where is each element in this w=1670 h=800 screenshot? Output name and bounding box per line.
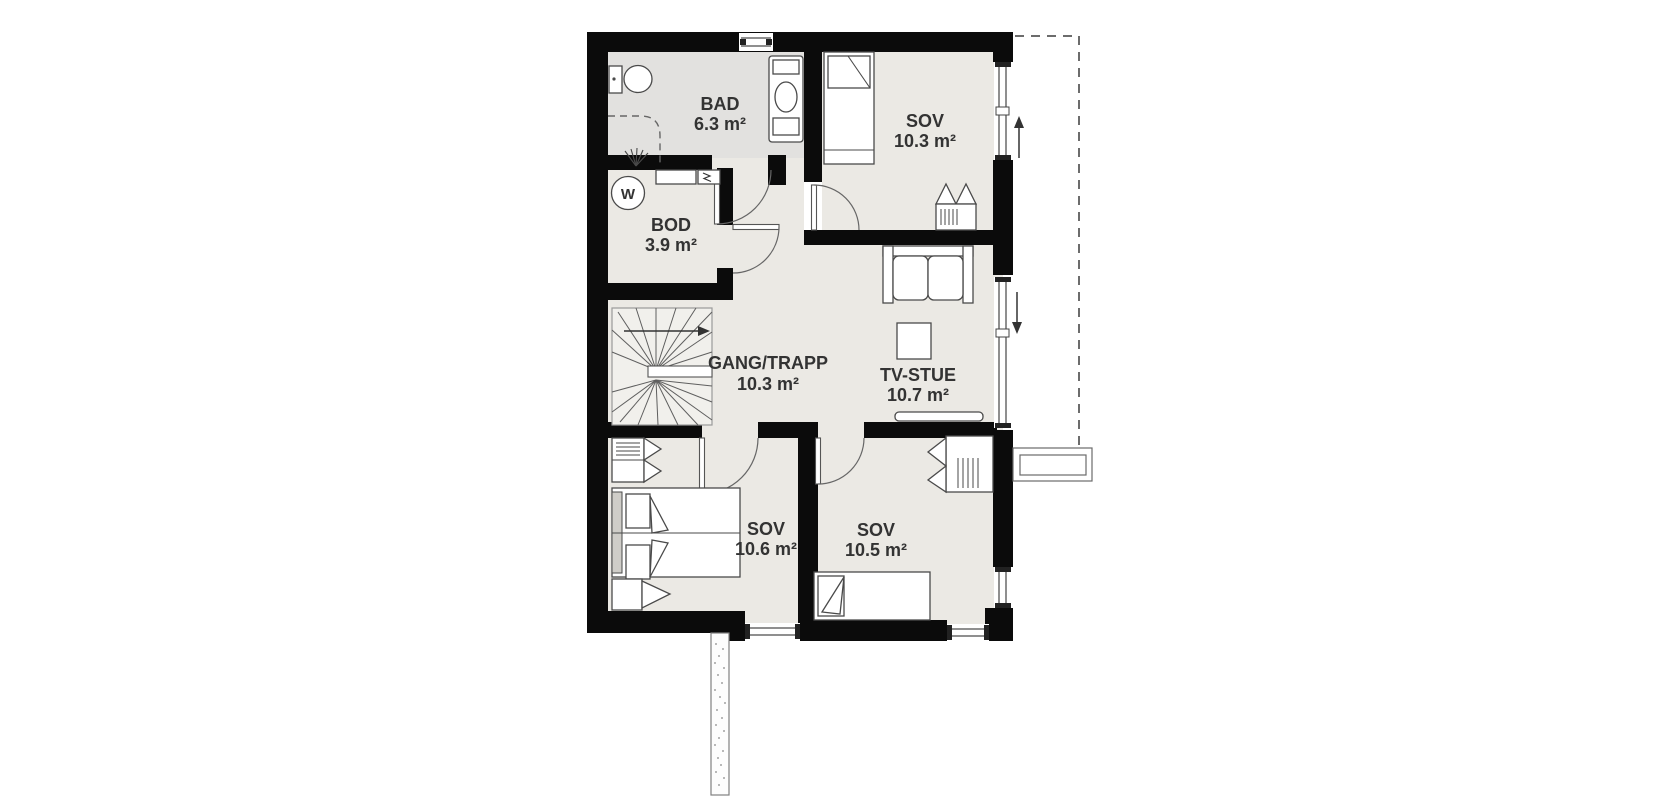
room-label-sov-top: SOV xyxy=(906,111,944,131)
room-label-sov-left: SOV xyxy=(747,519,785,539)
window-right-sov xyxy=(994,62,1012,160)
toilet xyxy=(609,66,652,94)
room-label-tvstue: TV-STUE xyxy=(880,365,956,385)
window-right-lower xyxy=(994,567,1012,608)
room-area-sov-right: 10.5 m² xyxy=(845,540,907,560)
exterior-wall-right-mid xyxy=(993,160,1013,275)
water-heater-label: W xyxy=(621,186,636,203)
room-area-gang: 10.3 m² xyxy=(737,374,799,394)
exterior-wall-left xyxy=(587,32,608,633)
floorplan-drawing: BAD 6.3 m² SOV 10.3 m² BOD 3.9 m² GANG/T… xyxy=(0,0,1670,800)
window-arrow-up xyxy=(1014,116,1024,158)
exterior-wall-top xyxy=(587,32,1013,52)
floorplan-canvas: BAD 6.3 m² SOV 10.3 m² BOD 3.9 m² GANG/T… xyxy=(0,0,1670,800)
wall-bod-right-stub xyxy=(717,268,733,283)
wall-bad-sov-divider xyxy=(804,32,822,182)
wall-sov106-top-right xyxy=(758,422,818,438)
window-top-vent xyxy=(739,33,773,51)
room-label-bad: BAD xyxy=(701,94,740,114)
bathtub xyxy=(769,56,803,142)
coffee-table xyxy=(897,323,931,359)
room-area-bod: 3.9 m² xyxy=(645,235,697,255)
tv-bench xyxy=(895,412,983,421)
sofa xyxy=(883,246,973,303)
wall-sov-tvstue-divider xyxy=(804,230,997,245)
support-post xyxy=(711,633,729,795)
exterior-wall-right-lower xyxy=(993,430,1013,567)
exterior-wall-bottom-left xyxy=(587,611,730,633)
wall-bod-bottom xyxy=(608,283,733,300)
room-label-gang: GANG/TRAPP xyxy=(708,353,828,373)
staircase xyxy=(612,308,712,425)
window-arrow-down xyxy=(1012,292,1022,334)
room-area-sov-top: 10.3 m² xyxy=(894,131,956,151)
room-area-bad: 6.3 m² xyxy=(694,114,746,134)
balcony-beam xyxy=(1013,448,1092,481)
room-area-sov-left: 10.6 m² xyxy=(735,539,797,559)
roof-overhang-dashline xyxy=(1015,36,1079,448)
bed-single-bottom xyxy=(814,572,930,620)
exterior-wall-bottom-right-corner xyxy=(985,608,1013,641)
bod-counter xyxy=(656,170,696,184)
window-right-tvstue xyxy=(994,277,1012,428)
bed-double xyxy=(612,488,740,579)
room-area-tvstue: 10.7 m² xyxy=(887,385,949,405)
exterior-wall-right-top xyxy=(993,32,1013,62)
window-bottom-left xyxy=(745,623,800,640)
room-label-sov-right: SOV xyxy=(857,520,895,540)
exterior-wall-bottom-center xyxy=(800,620,947,641)
bed-single-top xyxy=(824,52,874,164)
window-bottom-right xyxy=(947,624,989,641)
room-label-bod: BOD xyxy=(651,215,691,235)
